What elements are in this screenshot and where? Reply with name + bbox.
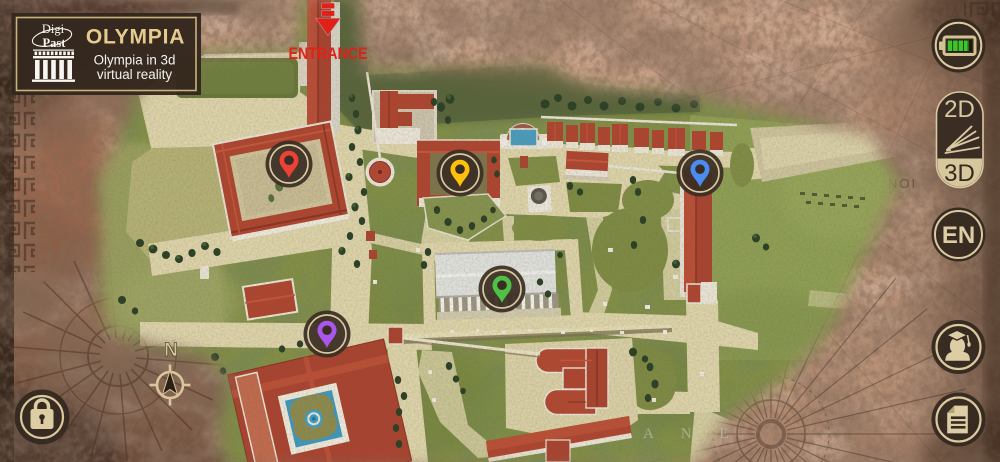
svg-text:Past: Past <box>43 36 67 50</box>
svg-text:N: N <box>164 340 178 361</box>
svg-text:2D: 2D <box>944 96 975 123</box>
svg-text:OLYMPIA: OLYMPIA <box>86 26 185 49</box>
svg-text:Digi: Digi <box>42 22 65 36</box>
svg-text:EN: EN <box>942 222 975 249</box>
svg-text:3D: 3D <box>944 160 975 187</box>
svg-text:ENTRANCE: ENTRANCE <box>289 44 368 63</box>
svg-text:Olympia in 3d: Olympia in 3d <box>94 53 176 68</box>
svg-text:virtual reality: virtual reality <box>97 67 172 82</box>
